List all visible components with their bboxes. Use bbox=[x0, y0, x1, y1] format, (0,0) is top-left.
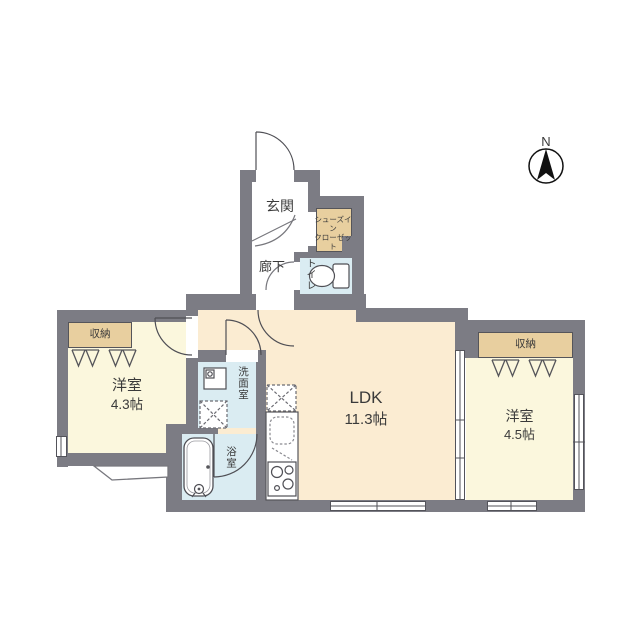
floor-plan: N 玄関 廊下 トイレ シューズイン クローゼット 収納 収納 洋室 4.3帖 … bbox=[0, 0, 640, 640]
shoe-closet-label: シューズイン クローゼット bbox=[313, 215, 353, 251]
western-room-left-label: 洋室 4.3帖 bbox=[68, 377, 186, 415]
hanger-icon bbox=[72, 350, 556, 376]
genkan-step-line bbox=[252, 215, 296, 246]
genkan-label: 玄関 bbox=[252, 198, 308, 216]
storage-right-label: 収納 bbox=[478, 338, 573, 351]
north-arrow-icon bbox=[529, 149, 563, 183]
left-room-door-swing bbox=[155, 318, 192, 355]
bay-window-shape bbox=[94, 466, 168, 480]
sink-icon bbox=[204, 368, 226, 389]
western-room-right-label: 洋室 4.5帖 bbox=[466, 408, 573, 443]
washroom-label: 洗面室 bbox=[236, 366, 251, 426]
stove-icon bbox=[268, 462, 296, 496]
compass-north-label: N bbox=[536, 134, 556, 150]
washroom-door-swing bbox=[226, 320, 261, 355]
bathroom-label: 浴室 bbox=[224, 446, 239, 480]
washing-machine-icon bbox=[200, 401, 227, 428]
entrance-door-swing bbox=[256, 132, 294, 170]
storage-left-label: 収納 bbox=[68, 328, 132, 341]
hall-ldk-door-swing bbox=[258, 310, 294, 346]
fixtures-overlay bbox=[0, 0, 640, 640]
ldk-label: LDK 11.3帖 bbox=[236, 387, 496, 430]
hallway-label: 廊下 bbox=[244, 259, 300, 275]
toilet-label: トイレ bbox=[302, 258, 317, 294]
